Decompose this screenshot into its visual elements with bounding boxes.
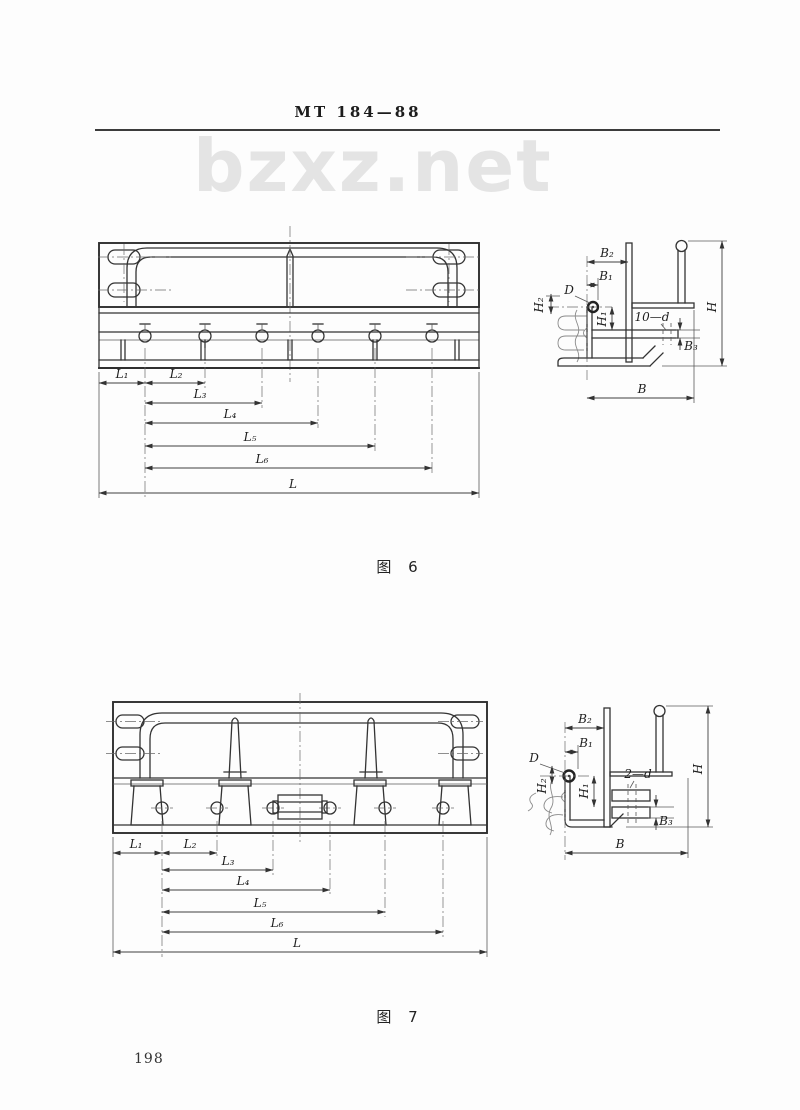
- fig7-dim-label-l: L: [292, 936, 301, 950]
- fig6-section-label-b2: B₂: [599, 246, 614, 260]
- fig7-section-label-d: D: [528, 751, 539, 765]
- fig7-section-view: B₂ B₁ D H₂ H₁ 2—d B₃: [528, 706, 713, 861]
- figure7-drawing: L₁ L₂ L₃ L₄ L₅ L₆ L: [0, 685, 800, 985]
- fig6-dim-label-l5: L₅: [243, 430, 257, 444]
- fig6-section-label-d: D: [563, 283, 574, 297]
- fig6-horizontal-plate: [632, 303, 694, 308]
- fig7-handle-bar-end: [654, 706, 665, 773]
- fig7-loop-posts: [224, 718, 382, 778]
- fig6-section-label-b3: B₃: [683, 339, 698, 353]
- fig7-section-label-b3: B₃: [658, 814, 673, 828]
- fig6-dim-label-l4: L₄: [223, 407, 237, 421]
- fig7-dim-label-l2: L₂: [183, 837, 197, 851]
- fig6-section-label-holes: 10—d: [635, 310, 670, 324]
- fig7-front-view: [106, 693, 487, 845]
- fig6-dim-label-l6: L₆: [255, 452, 269, 466]
- fig6-section-label-b: B: [637, 382, 647, 396]
- fig7-dim-label-l3: L₃: [221, 854, 235, 868]
- fig6-front-view: [98, 226, 480, 382]
- fig6-base-rails: [99, 307, 479, 368]
- figure7-caption: 图 7: [340, 1006, 460, 1027]
- page-number: 198: [134, 1051, 164, 1067]
- fig7-section-dimensions: B₂ B₁ D H₂ H₁ 2—d B₃: [528, 706, 713, 858]
- fig7-section-label-holes: 2—d: [623, 767, 652, 781]
- figure6-caption: 图 6: [340, 556, 460, 577]
- fig7-bolt-shelves: [612, 784, 650, 824]
- fig7-vertical-plate: [604, 708, 610, 827]
- fig6-dim-label-l: L: [288, 477, 297, 491]
- fig6-phantom-profile: [558, 310, 587, 362]
- fig6-section-label-h: H: [705, 301, 719, 313]
- fig7-section-label-h: H: [691, 763, 705, 775]
- fig6-section-label-h2: H₂: [532, 297, 546, 313]
- fig7-section-label-b1: B₁: [578, 736, 593, 750]
- fig6-dim-label-l1: L₁: [115, 367, 129, 381]
- figure6-drawing: L₁ L₂ L₃ L₄ L₅ L₆ L: [0, 220, 800, 520]
- fig7-corner-slots: [106, 715, 483, 760]
- fig7-dim-label-l5: L₅: [253, 896, 267, 910]
- fig7-section-label-b: B: [615, 837, 625, 851]
- fig6-handle-tube-inner: [136, 257, 448, 307]
- fig6-handle-bar-end: [676, 241, 687, 304]
- fig7-section-label-h2: H₂: [535, 778, 549, 794]
- fig6-bolts: [139, 324, 438, 342]
- fig7-dim-label-l6: L₆: [270, 916, 284, 930]
- fig6-dim-label-l2: L₂: [169, 367, 183, 381]
- scanned-standard-page: MT 184—88 bzxz.net: [0, 0, 800, 1110]
- fig7-section-label-h1: H₁: [577, 783, 591, 799]
- fig6-section-label-h1: H₁: [595, 311, 609, 327]
- fig7-handle-tube-inner: [150, 723, 453, 778]
- fig6-dim-label-l3: L₃: [193, 387, 207, 401]
- fig6-section-view: B₂ B₁ D H₂ H₁ 10—d B₃: [532, 241, 727, 404]
- fig6-section-label-b1: B₁: [598, 269, 613, 283]
- fig6-dimensions: L₁ L₂ L₃ L₄ L₅ L₆ L: [99, 348, 479, 498]
- fig7-dim-label-l4: L₄: [236, 874, 250, 888]
- watermark-text: bzxz.net: [193, 128, 553, 204]
- fig7-section-label-b2: B₂: [577, 712, 592, 726]
- standard-number: MT 184—88: [0, 103, 716, 121]
- fig7-dim-label-l1: L₁: [129, 837, 143, 851]
- fig6-vertical-plate: [626, 243, 632, 362]
- fig6-section-dimensions: B₂ B₁ D H₂ H₁ 10—d B₃: [532, 241, 727, 403]
